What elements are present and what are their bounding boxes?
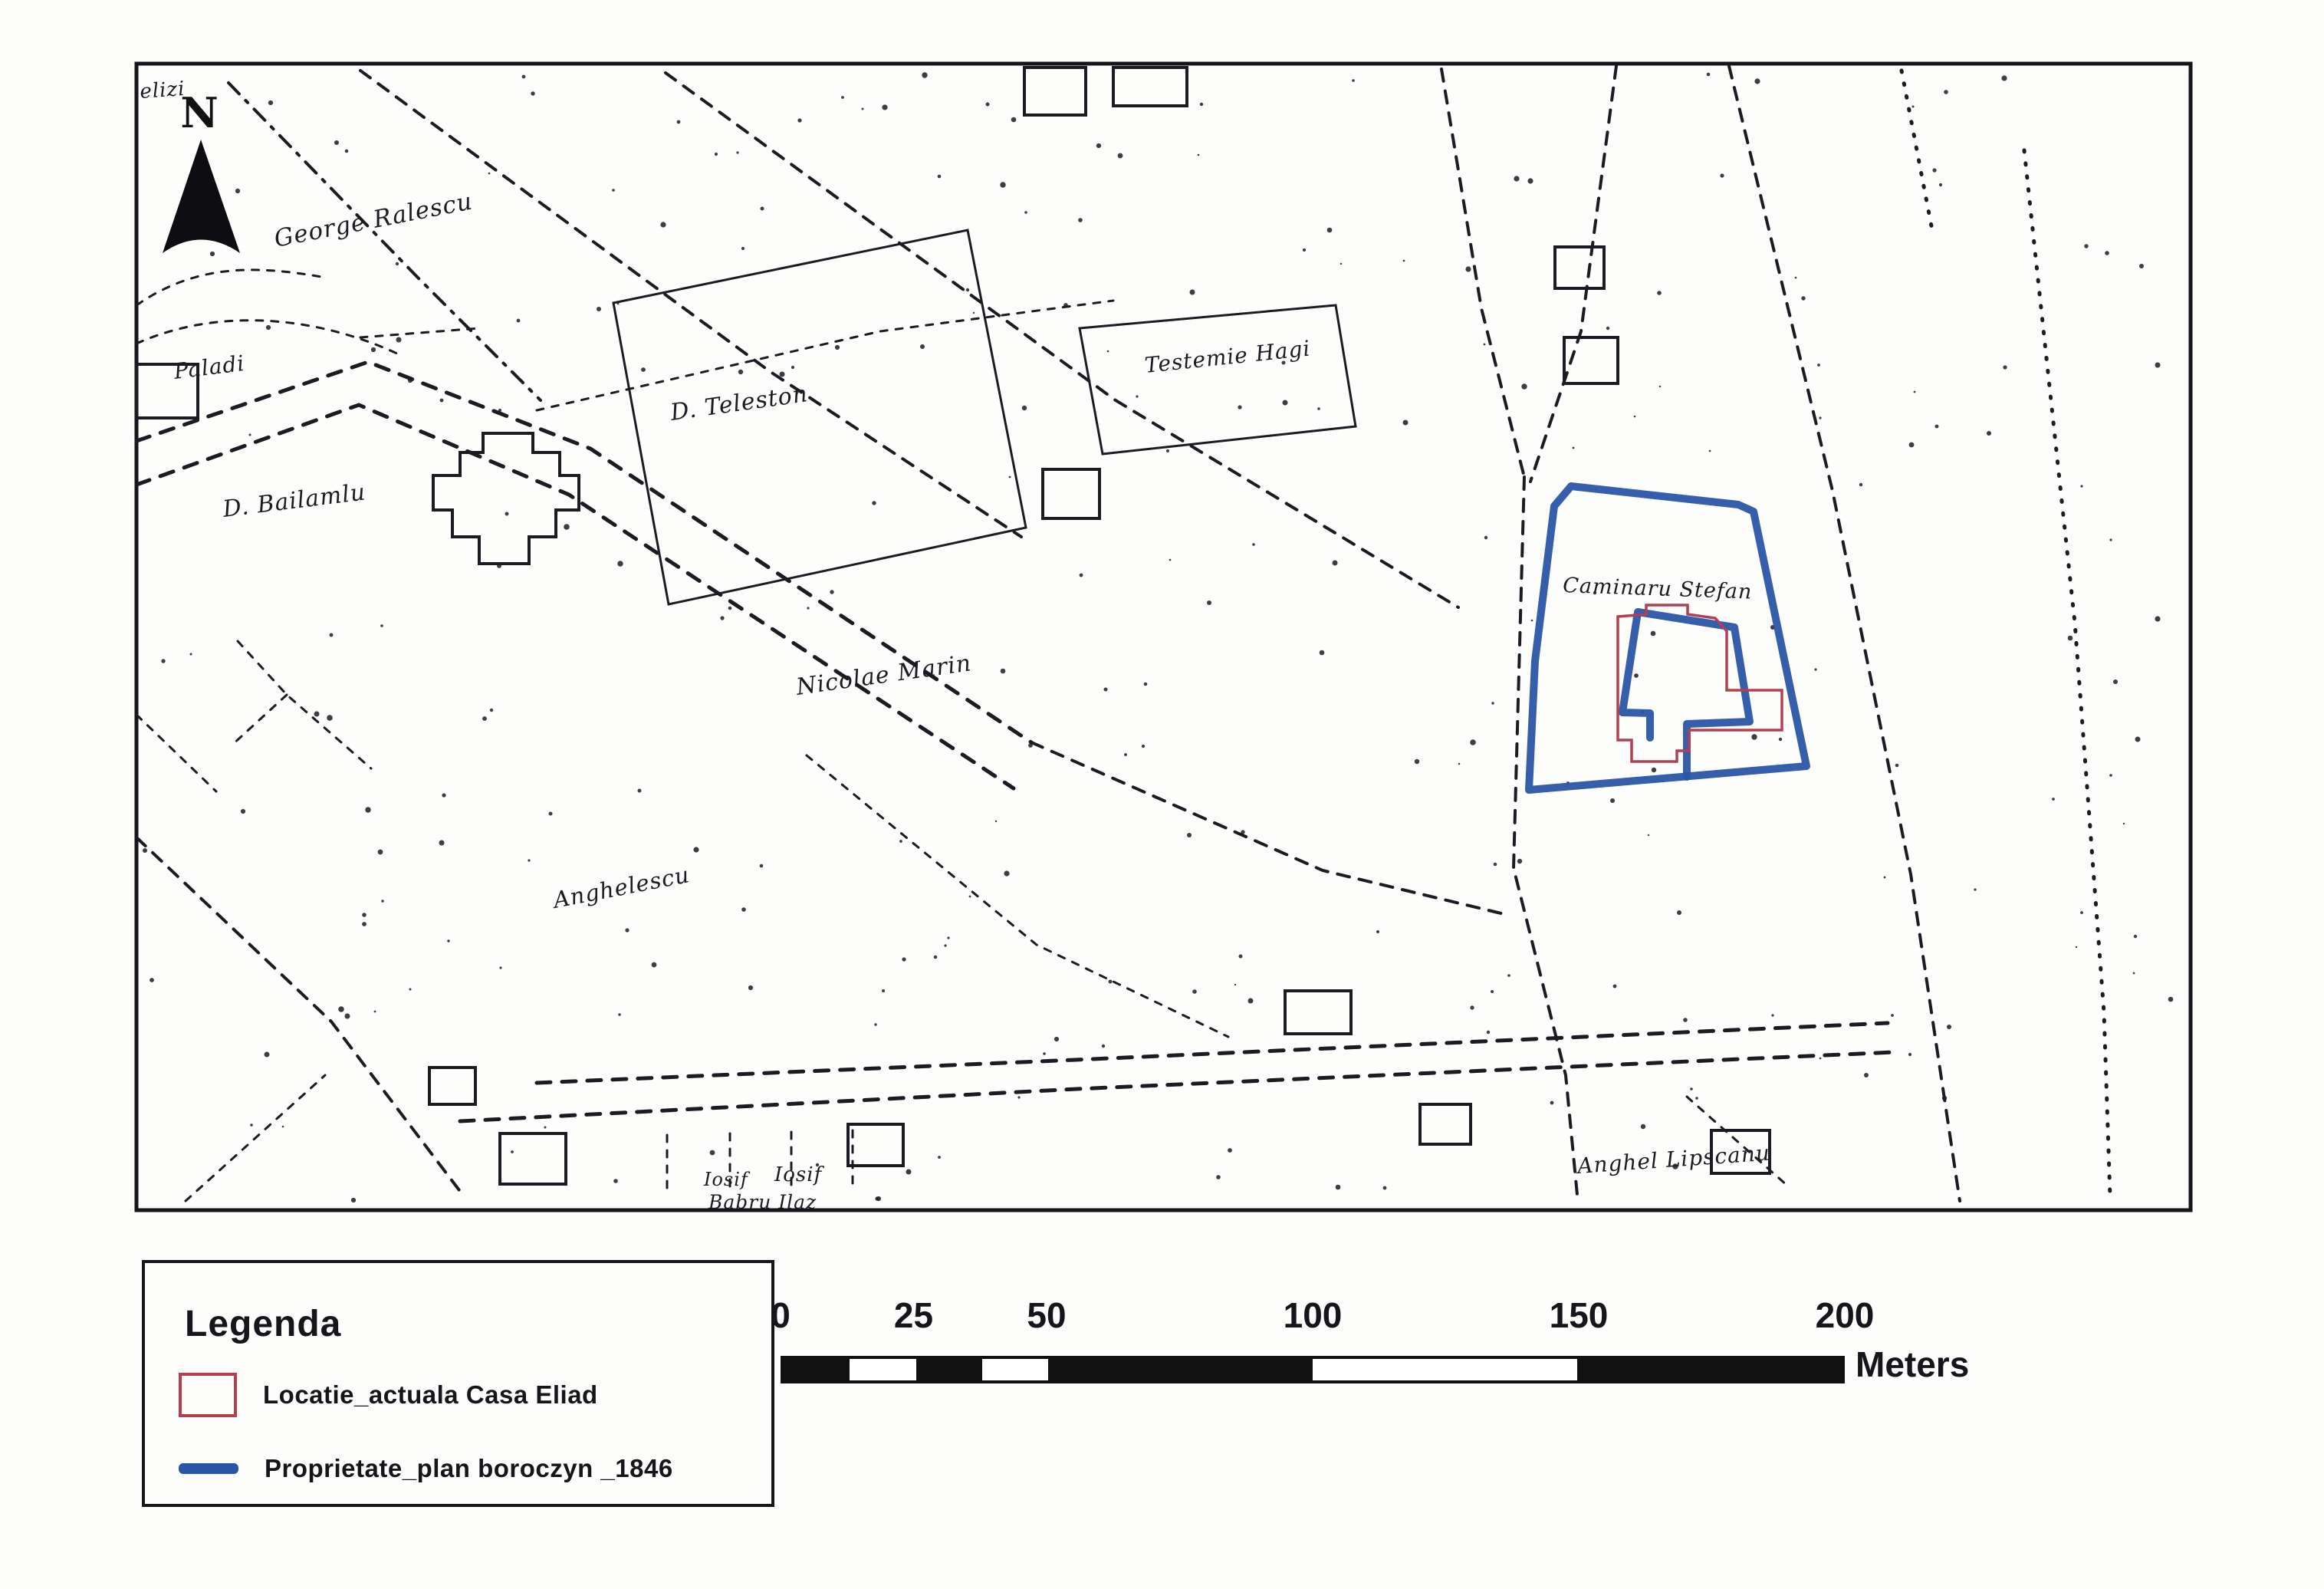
- speckle-dot: [1707, 73, 1711, 77]
- speckle-dot: [1751, 734, 1757, 739]
- speckle-dot: [327, 715, 333, 721]
- speckle-dot: [439, 841, 445, 846]
- scalebar-segment: [850, 1359, 915, 1380]
- speckle-dot: [1054, 1037, 1059, 1041]
- speckle-dot: [1403, 420, 1409, 426]
- speckle-dot: [617, 561, 623, 566]
- speckle-dot: [2134, 935, 2137, 938]
- speckle-dot: [2109, 538, 2112, 541]
- speckle-dot: [1648, 834, 1649, 836]
- speckle-dot: [362, 913, 367, 917]
- speckle-dot: [1947, 1025, 1951, 1029]
- speckle-dot: [2003, 365, 2007, 369]
- speckle-dot: [1239, 955, 1243, 959]
- scalebar-segment: [1313, 1359, 1577, 1380]
- speckle-dot: [1795, 277, 1797, 279]
- speckle-dot: [1912, 106, 1915, 108]
- scalebar-tick-label: 150: [1550, 1295, 1609, 1336]
- speckle-dot: [1507, 974, 1510, 977]
- speckle-dot: [517, 319, 521, 323]
- speckle-dot: [268, 100, 273, 105]
- speckle-dot: [522, 75, 526, 79]
- speckle-dot: [617, 303, 620, 305]
- speckle-dot: [2080, 911, 2083, 914]
- scalebar-segment: [784, 1359, 850, 1380]
- legend-swatch-rect-outline: [179, 1373, 237, 1417]
- speckle-dot: [1634, 673, 1639, 678]
- speckle-dot: [1987, 431, 1991, 436]
- speckle-dot: [944, 944, 946, 946]
- speckle-dot: [748, 985, 753, 990]
- speckle-dot: [2076, 946, 2077, 948]
- speckle-dot: [2113, 679, 2118, 684]
- speckle-dot: [345, 150, 349, 153]
- speckle-dot: [1942, 1096, 1947, 1100]
- speckle-dot: [250, 1123, 253, 1127]
- speckle-dot: [760, 864, 764, 868]
- speckle-dot: [966, 288, 969, 291]
- legend-box: Legenda Locatie_actuala Casa EliadPropri…: [142, 1260, 774, 1507]
- speckle-dot: [1004, 870, 1009, 876]
- speckle-dot: [830, 590, 833, 594]
- speckle-dot: [876, 1196, 881, 1201]
- speckle-dot: [482, 716, 487, 721]
- speckle-dot: [1606, 327, 1609, 330]
- speckle-dot: [1238, 405, 1241, 409]
- speckle-dot: [1801, 296, 1805, 300]
- speckle-dot: [1657, 291, 1662, 295]
- speckle-dot: [1908, 1053, 1911, 1056]
- speckle-dot: [2133, 972, 2135, 975]
- speckle-dot: [1613, 985, 1617, 989]
- speckle-dot: [2109, 774, 2112, 777]
- speckle-dot: [241, 809, 245, 814]
- speckle-dot: [1895, 764, 1899, 768]
- speckle-dot: [1383, 1186, 1387, 1190]
- speckle-dot: [1109, 980, 1113, 984]
- speckle-dot: [1819, 416, 1821, 419]
- speckle-dot: [934, 956, 938, 959]
- speckle-dot: [1011, 117, 1017, 123]
- speckle-dot: [1118, 153, 1123, 159]
- speckle-dot: [1248, 998, 1254, 1004]
- speckle-dot: [1659, 386, 1661, 387]
- speckle-dot: [677, 120, 681, 124]
- speckle-dot: [728, 607, 732, 610]
- speckle-dot: [1610, 798, 1615, 803]
- speckle-dot: [1573, 447, 1575, 449]
- speckle-dot: [440, 399, 444, 403]
- speckle-dot: [1317, 407, 1320, 410]
- scalebar-tick-label: 100: [1284, 1295, 1343, 1336]
- scalebar-segment: [1577, 1359, 1842, 1380]
- speckle-dot: [807, 607, 809, 609]
- speckle-dot: [1376, 930, 1379, 933]
- speckle-dot: [612, 189, 615, 192]
- speckle-dot: [1864, 1073, 1869, 1077]
- speckle-dot: [1891, 1014, 1894, 1017]
- speckle-dot: [1491, 990, 1494, 993]
- speckle-dot: [1001, 669, 1006, 674]
- speckle-dot: [1909, 442, 1915, 448]
- speckle-dot: [505, 512, 509, 516]
- speckle-dot: [1487, 1031, 1490, 1034]
- speckle-dot: [1241, 830, 1244, 834]
- speckle-dot: [638, 789, 642, 793]
- speckle-dot: [1634, 416, 1636, 418]
- legend-item-label: Locatie_actuala Casa Eliad: [263, 1380, 598, 1410]
- speckle-dot: [498, 409, 501, 412]
- speckle-dot: [741, 907, 746, 912]
- speckle-dot: [1884, 877, 1886, 879]
- speckle-dot: [396, 262, 399, 265]
- speckle-dot: [899, 840, 902, 843]
- speckle-dot: [1009, 476, 1011, 479]
- scalebar-tick-label: 200: [1816, 1295, 1875, 1336]
- speckle-dot: [488, 173, 491, 175]
- speckle-dot: [1859, 483, 1862, 486]
- speckle-dot: [995, 821, 997, 822]
- speckle-dot: [265, 1052, 270, 1058]
- speckle-dot: [920, 344, 925, 349]
- legend-item-label: Proprietate_plan boroczyn _1846: [265, 1454, 673, 1483]
- speckle-dot: [1683, 1018, 1688, 1022]
- speckle-dot: [1078, 218, 1083, 222]
- speckle-dot: [1932, 168, 1936, 172]
- scalebar-bar: [781, 1356, 1845, 1383]
- speckle-dot: [882, 104, 887, 110]
- speckle-dot: [1641, 1124, 1645, 1129]
- speckle-dot: [371, 347, 376, 352]
- speckle-dot: [150, 978, 154, 982]
- speckle-dot: [1043, 1052, 1046, 1055]
- speckle-dot: [1352, 79, 1355, 82]
- speckle-dot: [190, 653, 192, 656]
- speckle-dot: [330, 633, 334, 637]
- speckle-dot: [882, 989, 885, 992]
- speckle-dot: [862, 108, 864, 110]
- speckle-dot: [235, 189, 240, 193]
- speckle-dot: [720, 616, 724, 620]
- speckle-dot: [1102, 1045, 1105, 1048]
- speckle-dot: [499, 966, 501, 969]
- speckle-dot: [1819, 1058, 1822, 1060]
- speckle-dot: [1283, 400, 1288, 406]
- speckle-dot: [210, 252, 215, 256]
- speckle-dot: [693, 847, 699, 852]
- speckle-dot: [1124, 753, 1127, 756]
- speckle-dot: [490, 709, 493, 712]
- speckle-dot: [1484, 536, 1487, 539]
- speckle-dot: [1104, 688, 1108, 692]
- speckle-dot: [1340, 263, 1342, 265]
- speckle-dot: [1531, 620, 1533, 622]
- speckle-dot: [1527, 178, 1533, 183]
- speckle-dot: [1690, 1087, 1693, 1091]
- speckle-dot: [1415, 759, 1419, 764]
- speckle-dot: [282, 1126, 284, 1128]
- speckle-dot: [922, 72, 927, 77]
- speckle-dot: [1403, 260, 1405, 262]
- speckle-dot: [710, 1150, 715, 1156]
- speckle-dot: [365, 807, 370, 812]
- speckle-dot: [1166, 449, 1169, 452]
- speckle-dot: [1465, 266, 1471, 271]
- speckle-dot: [973, 312, 975, 314]
- speckle-dot: [1024, 211, 1027, 214]
- speckle-dot: [1198, 154, 1200, 156]
- speckle-dot: [1096, 143, 1101, 148]
- legend-item: Locatie_actuala Casa Eliad: [179, 1371, 771, 1419]
- speckle-dot: [381, 900, 383, 902]
- speckle-dot: [447, 939, 449, 942]
- scalebar-ticks: 02550100150200: [781, 1295, 1845, 1337]
- speckle-dot: [1550, 1101, 1554, 1105]
- speckle-dot: [1200, 103, 1203, 106]
- speckle-dot: [641, 367, 646, 372]
- speckle-dot: [1514, 176, 1519, 181]
- speckle-dot: [380, 624, 383, 627]
- map-frame-border: [136, 64, 2191, 1210]
- north-arrow-label: N: [180, 88, 218, 137]
- speckle-dot: [2052, 798, 2055, 801]
- speckle-dot: [266, 325, 271, 330]
- speckle-dot: [1491, 702, 1494, 704]
- scalebar-segment: [982, 1359, 1048, 1380]
- speckle-dot: [1779, 738, 1782, 741]
- speckle-dot: [906, 1170, 912, 1175]
- speckle-dot: [1944, 90, 1948, 94]
- speckle-dot: [1207, 600, 1211, 605]
- speckle-dot: [1327, 228, 1333, 233]
- speckle-dot: [1169, 559, 1172, 561]
- speckle-dot: [652, 962, 657, 968]
- legend-swatch-line: [179, 1463, 238, 1474]
- speckle-dot: [549, 812, 553, 816]
- speckle-dot: [1192, 989, 1197, 994]
- speckle-dot: [1652, 768, 1656, 772]
- speckle-dot: [314, 712, 320, 717]
- speckle-dot: [835, 345, 840, 350]
- speckle-dot: [1320, 650, 1325, 656]
- speckle-dot: [374, 1011, 376, 1013]
- speckle-dot: [791, 366, 794, 369]
- speckle-dot: [1939, 183, 1942, 186]
- speckle-dot: [969, 896, 971, 898]
- speckle-dot: [338, 1006, 344, 1012]
- speckle-dot: [1107, 350, 1109, 353]
- speckle-dot: [1754, 78, 1760, 84]
- speckle-dot: [874, 1023, 876, 1025]
- speckle-dot: [1136, 395, 1138, 397]
- speckle-dot: [408, 378, 413, 383]
- scalebar: 02550100150200 Meters: [781, 1295, 2023, 1394]
- speckle-dot: [1017, 1096, 1020, 1098]
- scalebar-unit-label: Meters: [1856, 1344, 1969, 1385]
- speckle-dot: [396, 337, 402, 343]
- speckle-dot: [1817, 364, 1820, 367]
- speckle-dot: [947, 936, 949, 939]
- speckle-dot: [2168, 997, 2174, 1002]
- speckle-dot: [1046, 1059, 1048, 1061]
- speckle-dot: [2105, 251, 2109, 255]
- speckle-dot: [1080, 574, 1083, 577]
- scalebar-tick-label: 25: [894, 1295, 933, 1336]
- speckle-dot: [1695, 1097, 1698, 1100]
- speckle-dot: [1000, 182, 1005, 187]
- speckle-dot: [511, 1150, 514, 1153]
- speckle-dot: [1028, 743, 1033, 748]
- map-handwritten-label: Babru Ilaz: [708, 1191, 817, 1213]
- speckle-dot: [613, 1179, 618, 1183]
- speckle-dot: [362, 922, 367, 926]
- speckle-dot: [564, 524, 570, 530]
- speckle-dot: [2001, 75, 2007, 81]
- speckle-dot: [715, 153, 718, 156]
- speckle-dot: [1187, 833, 1192, 837]
- speckle-dot: [249, 434, 251, 436]
- speckle-dot: [1144, 683, 1148, 686]
- speckle-dot: [1336, 1185, 1341, 1190]
- speckle-dot: [1974, 888, 1976, 890]
- speckle-dot: [1022, 406, 1027, 410]
- speckle-dot: [1216, 1175, 1221, 1179]
- speckle-dot: [1470, 1005, 1474, 1009]
- speckle-dot: [2135, 737, 2141, 742]
- map-layout-page: N eliziGeorge RalescuPaladiD. BailamluD.…: [0, 0, 2324, 1589]
- speckle-dot: [2080, 485, 2082, 487]
- speckle-dot: [1484, 344, 1486, 346]
- speckle-dot: [938, 175, 942, 179]
- speckle-dot: [1470, 739, 1476, 745]
- speckle-dot: [2139, 264, 2144, 268]
- speckle-dot: [986, 103, 990, 107]
- speckle-dot: [497, 564, 501, 568]
- speckle-dot: [841, 96, 844, 99]
- legend-item: Proprietate_plan boroczyn _1846: [179, 1445, 771, 1492]
- speckle-dot: [1494, 863, 1497, 867]
- speckle-dot: [797, 118, 801, 122]
- speckle-dot: [597, 307, 601, 311]
- legend-title: Legenda: [185, 1303, 771, 1345]
- speckle-dot: [618, 1013, 620, 1015]
- scalebar-segment: [1048, 1359, 1313, 1380]
- speckle-dot: [1190, 290, 1195, 295]
- speckle-dot: [736, 151, 738, 153]
- speckle-dot: [761, 207, 764, 211]
- speckle-dot: [741, 247, 745, 250]
- speckle-dot: [1814, 668, 1816, 670]
- speckle-dot: [1677, 910, 1681, 915]
- speckle-dot: [544, 1127, 547, 1129]
- scalebar-tick-label: 0: [771, 1295, 791, 1336]
- speckle-dot: [1914, 391, 1916, 393]
- speckle-dot: [528, 859, 530, 861]
- speckle-dot: [1303, 248, 1306, 252]
- speckle-dot: [2155, 616, 2160, 621]
- speckle-dot: [409, 989, 412, 991]
- speckle-dot: [351, 1198, 356, 1202]
- speckle-dot: [1935, 425, 1939, 429]
- speckle-dot: [1517, 859, 1522, 864]
- speckle-dot: [902, 957, 906, 961]
- speckle-dot: [1709, 450, 1711, 452]
- speckle-dot: [1228, 1148, 1232, 1153]
- speckle-dot: [531, 91, 534, 95]
- speckle-dot: [2068, 636, 2073, 641]
- speckle-dot: [334, 140, 339, 145]
- speckle-dot: [738, 370, 743, 374]
- legend-items: Locatie_actuala Casa EliadProprietate_pl…: [145, 1371, 771, 1492]
- speckle-dot: [345, 1014, 350, 1019]
- speckle-dot: [143, 848, 147, 853]
- speckle-dot: [2084, 244, 2088, 248]
- speckle-dot: [2155, 363, 2161, 368]
- speckle-dot: [1521, 383, 1527, 389]
- speckle-dot: [378, 850, 383, 855]
- speckle-dot: [2123, 823, 2125, 824]
- speckle-dot: [1142, 745, 1145, 748]
- speckle-dot: [780, 372, 785, 377]
- scalebar-tick-label: 50: [1027, 1295, 1066, 1336]
- speckle-dot: [161, 659, 165, 663]
- speckle-dot: [1234, 984, 1236, 985]
- speckle-dot: [625, 928, 629, 932]
- speckle-dot: [660, 222, 666, 227]
- speckle-dot: [1720, 173, 1724, 177]
- map-handwritten-label: elizi: [139, 77, 186, 104]
- speckle-dot: [1458, 763, 1461, 765]
- speckle-dot: [1063, 303, 1068, 308]
- speckle-dot: [1333, 561, 1338, 566]
- speckle-dot: [1651, 631, 1656, 637]
- scalebar-segment: [916, 1359, 982, 1380]
- map-handwritten-label: Iosif: [703, 1169, 751, 1190]
- speckle-dot: [1771, 1014, 1773, 1016]
- map-handwritten-label: Iosif: [774, 1163, 825, 1186]
- speckle-dot: [938, 1156, 941, 1159]
- speckle-dot: [872, 501, 876, 505]
- speckle-dot: [1252, 543, 1255, 546]
- speckle-dot: [442, 793, 445, 797]
